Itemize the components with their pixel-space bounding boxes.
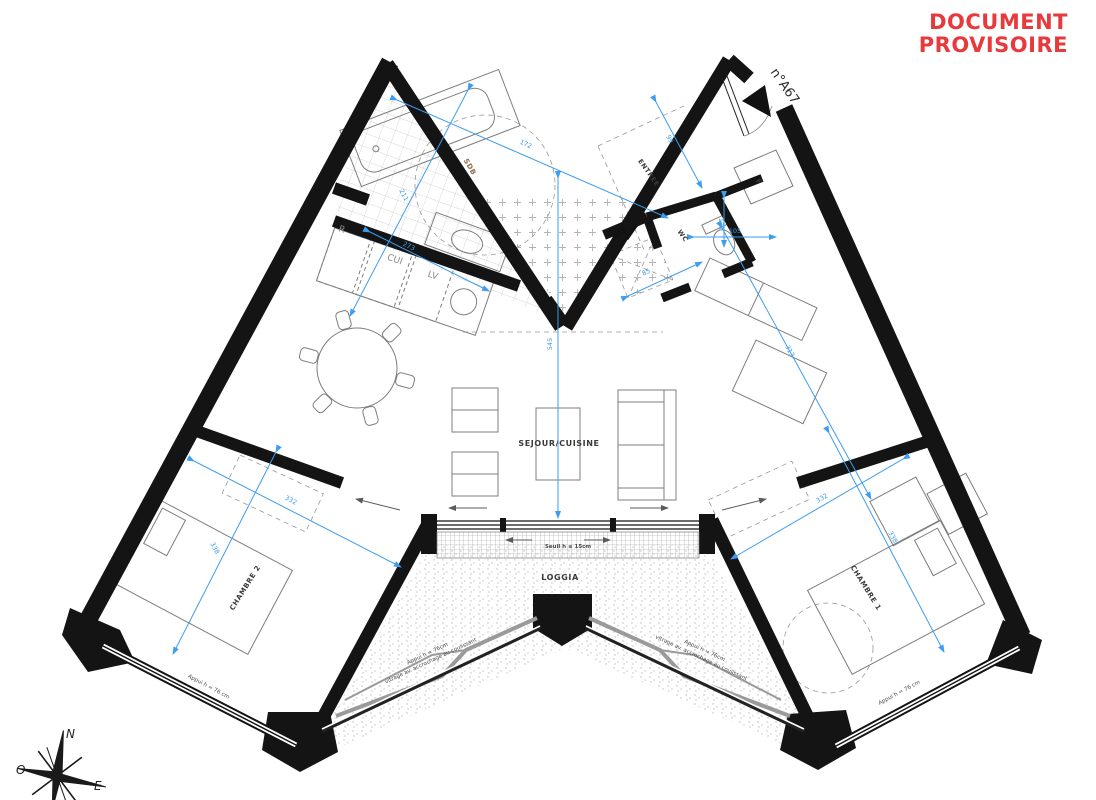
dim-chambre2-depth: 338: [208, 541, 221, 556]
dim-wc-length: 131: [717, 218, 725, 230]
dim-wc-width: 105: [729, 227, 741, 235]
apartment-number: n°A67: [767, 66, 802, 108]
label-sejour-cuisine: SEJOUR/CUISINE: [518, 439, 599, 448]
floor-plan-page: 172 211 273 545 99 131 105 85 313 332 33…: [0, 0, 1096, 800]
wall-wc-south-a: [662, 287, 690, 298]
window-chambre1: [836, 648, 1019, 746]
dim-sejour-right: 313: [783, 344, 796, 359]
status-stamp: DOCUMENT PROVISOIRE: [919, 10, 1068, 57]
stamp-line2: PROVISOIRE: [919, 33, 1068, 57]
dim-sejour-depth: 545: [546, 338, 554, 350]
wall-wc-south-b: [723, 262, 752, 274]
dining-table: [298, 310, 415, 426]
label-dishwasher: LV: [426, 270, 440, 283]
dim-chambre2-width: 332: [284, 494, 299, 507]
stamp-line1: DOCUMENT: [929, 10, 1068, 34]
sofa: [618, 390, 676, 500]
compass-east: E: [94, 779, 102, 793]
column-left-tip: [262, 712, 338, 772]
dim-sdb-width: 172: [519, 138, 534, 150]
chambre1-door-arrow: [722, 499, 766, 510]
window-chambre2: [103, 646, 296, 745]
wall-left-outer: [88, 62, 390, 620]
label-chambre2: CHAMBRE 2: [228, 564, 262, 612]
compass-west: O: [16, 763, 25, 777]
compass-rose: N O E: [13, 725, 113, 800]
entry-arrow-icon: [742, 85, 771, 117]
wall-chambre2: [191, 429, 342, 483]
label-cooker: CUI: [386, 253, 404, 268]
side-table: [732, 340, 826, 424]
label-chambre1: CHAMBRE 1: [849, 564, 883, 612]
floor-plan-drawing: 172 211 273 545 99 131 105 85 313 332 33…: [0, 0, 1096, 800]
sejour-glass-wall: [421, 514, 715, 558]
closet-f: [734, 150, 793, 204]
chambre2-door-arrow: [356, 499, 400, 510]
bed-chambre1: [808, 520, 985, 674]
label-loggia: LOGGIA: [541, 573, 579, 582]
wall-right-outer: [784, 108, 1022, 636]
sideboard: [695, 258, 817, 340]
label-wc: WC: [676, 228, 690, 243]
wall-entry-stub: [729, 60, 749, 78]
chambre1-wardrobe: [708, 461, 809, 538]
entry-door: [722, 76, 772, 136]
compass-north: N: [66, 727, 75, 741]
wall-chambre1: [798, 441, 929, 483]
seuil-note: Seuil h ≤ 15cm: [545, 544, 592, 550]
